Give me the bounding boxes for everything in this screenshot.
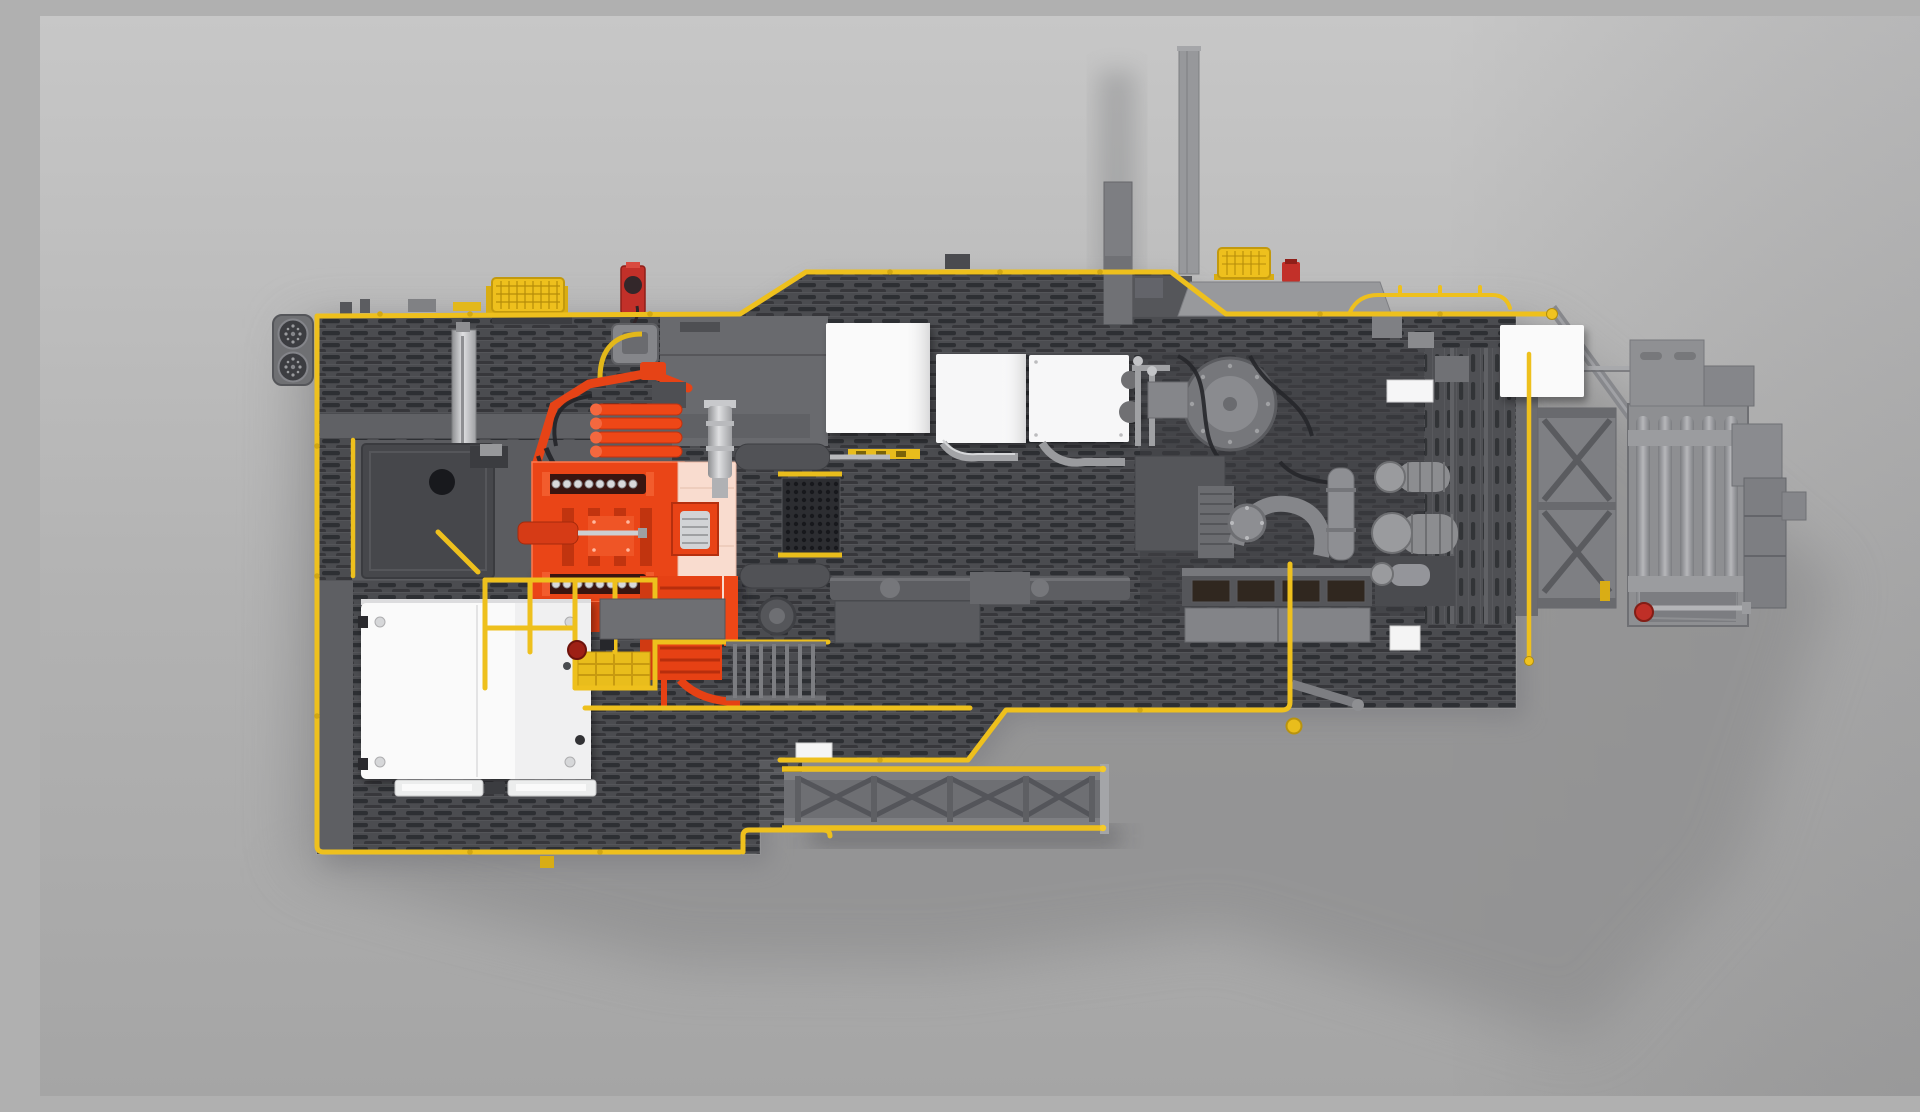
small-white-box-engine (1387, 380, 1433, 402)
hose-basket-right (1214, 248, 1274, 280)
white-box-3 (1029, 355, 1141, 442)
chain-track-lower (542, 572, 654, 596)
rig-top-view-render (40, 16, 1920, 1096)
radiator (1182, 568, 1372, 642)
chain-track-upper (542, 472, 654, 496)
red-knob (1635, 603, 1653, 621)
deck-hatch (362, 444, 508, 578)
e-stop-button (568, 641, 586, 659)
cabin-underside-trays (395, 780, 596, 796)
mesh-cooler (778, 474, 842, 555)
hose-basket-left (486, 278, 568, 317)
exhaust-stack-tall (1179, 48, 1199, 274)
twin-pumps (1371, 462, 1458, 606)
white-box-right (1500, 325, 1584, 397)
gooseneck-frame (1538, 408, 1616, 608)
small-white-box-lower (1390, 626, 1420, 650)
small-white-box-deck (796, 743, 832, 758)
rig-render-figure: Top view 3D rendering of a drilling / co… (40, 16, 1920, 1096)
roller-assembly (1628, 404, 1748, 626)
catwalk-gangway (760, 760, 1109, 834)
red-reel-right (1282, 262, 1300, 282)
round-port (429, 469, 455, 495)
white-box-2 (936, 354, 1026, 443)
white-box-1 (826, 323, 930, 433)
fan-pod (273, 315, 313, 385)
dark-ram-lower (740, 564, 830, 588)
muffler (1328, 468, 1354, 560)
yellow-tab (540, 856, 554, 868)
yellow-pad (1287, 719, 1302, 734)
